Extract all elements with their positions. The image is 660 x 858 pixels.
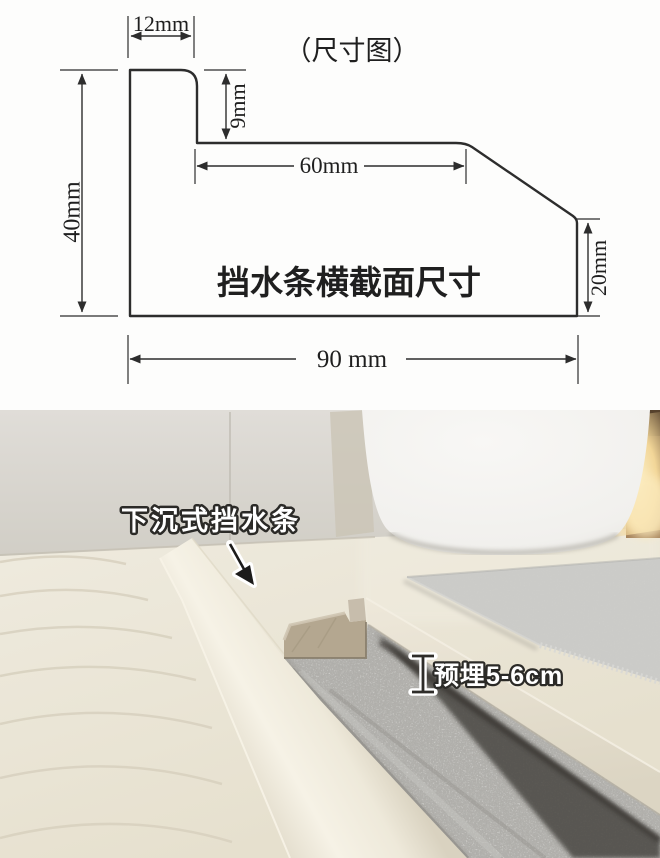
embed-callout-label: 预埋5-6cm (434, 662, 563, 690)
dim-label-right-height: 20mm (586, 240, 611, 296)
strip-callout-label: 下沉式挡水条 (121, 506, 301, 536)
dim-label-bottom-width: 90 mm (317, 346, 388, 373)
bathtub (362, 410, 650, 555)
dim-label-left-height: 40mm (60, 181, 86, 243)
dim-label-step-height: 9mm (225, 83, 250, 128)
infographic-page: （尺寸图） 12mm 40mm 9mm 60mm 20mm 90 mm 挡水条横… (0, 0, 660, 858)
embed-callout: 预埋5-6cm (412, 656, 563, 692)
strip-cut-lip (348, 598, 366, 622)
dimension-diagram: （尺寸图） 12mm 40mm 9mm 60mm 20mm 90 mm 挡水条横… (0, 0, 660, 410)
installation-photo: 下沉式挡水条 预埋5-6cm (0, 410, 660, 858)
diagram-caption: 挡水条横截面尺寸 (217, 265, 481, 302)
dim-label-top-width: 12mm (133, 11, 189, 36)
diagram-title: （尺寸图） (285, 36, 420, 66)
dim-label-shelf-width: 60mm (300, 153, 359, 178)
